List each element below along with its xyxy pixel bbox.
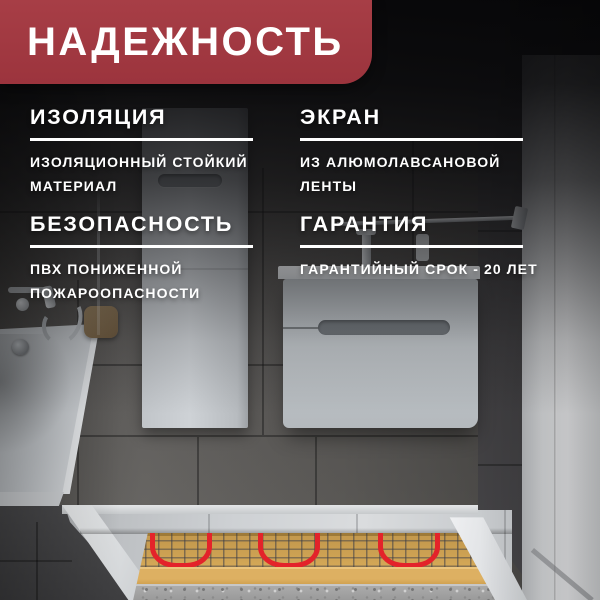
feature-underline [30, 138, 253, 141]
feature-underline [300, 138, 523, 141]
feature-body: ПВХ ПОНИЖЕННОЙ ПОЖАРООПАСНОСТИ [30, 257, 282, 305]
feature-underline [30, 245, 253, 248]
feature-body: ГАРАНТИЙНЫЙ СРОК - 20 ЛЕТ [300, 257, 552, 281]
feature-heading: ГАРАНТИЯ [300, 211, 552, 237]
promo-image: НАДЕЖНОСТЬ ИЗОЛЯЦИЯ ИЗОЛЯЦИОННЫЙ СТОЙКИЙ… [0, 0, 600, 600]
page-title: НАДЕЖНОСТЬ [27, 20, 344, 65]
title-banner: НАДЕЖНОСТЬ [0, 0, 372, 84]
feature-body: ИЗОЛЯЦИОННЫЙ СТОЙКИЙ МАТЕРИАЛ [30, 150, 282, 198]
feature-underline [300, 245, 523, 248]
feature-insulation: ИЗОЛЯЦИЯ ИЗОЛЯЦИОННЫЙ СТОЙКИЙ МАТЕРИАЛ [30, 104, 282, 198]
feature-body: ИЗ АЛЮМОЛАВСАНОВОЙ ЛЕНТЫ [300, 150, 552, 198]
feature-heading: БЕЗОПАСНОСТЬ [30, 211, 282, 237]
feature-warranty: ГАРАНТИЯ ГАРАНТИЙНЫЙ СРОК - 20 ЛЕТ [300, 211, 552, 281]
feature-screen: ЭКРАН ИЗ АЛЮМОЛАВСАНОВОЙ ЛЕНТЫ [300, 104, 552, 198]
feature-safety: БЕЗОПАСНОСТЬ ПВХ ПОНИЖЕННОЙ ПОЖАРООПАСНО… [30, 211, 282, 305]
feature-heading: ЭКРАН [300, 104, 552, 130]
feature-heading: ИЗОЛЯЦИЯ [30, 104, 282, 130]
